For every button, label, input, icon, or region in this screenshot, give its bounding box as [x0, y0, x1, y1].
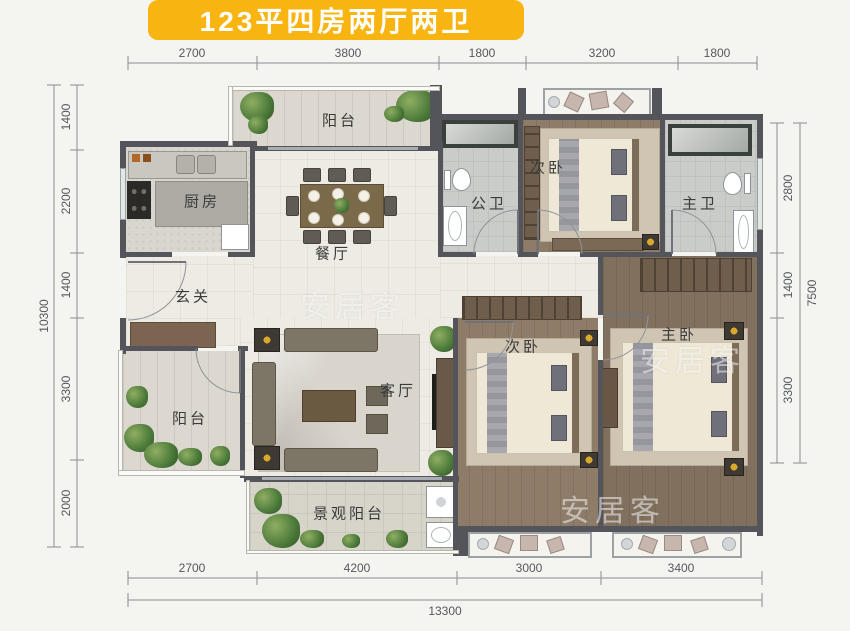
room-label-public-bath: 公卫	[471, 193, 507, 214]
door-arcs	[0, 0, 850, 631]
room-label-master-bath: 主卫	[682, 193, 718, 214]
door-arc	[538, 210, 582, 254]
room-label-dining: 餐厅	[315, 243, 351, 264]
room-label-master-bedroom: 主卧	[661, 324, 697, 345]
room-label-balcony-left: 阳台	[172, 408, 208, 429]
door-arc	[196, 349, 240, 393]
room-label-foyer: 玄关	[175, 286, 211, 307]
floor-plan-page: 2700 3800 1800 3200 1800 2700 4200 3000 …	[0, 0, 850, 631]
room-label-living: 客厅	[380, 380, 416, 401]
room-label-bedroom-top: 次卧	[530, 157, 566, 178]
page-title: 123平四房两厅两卫	[200, 0, 473, 40]
door-arc	[603, 315, 648, 360]
door-arc	[672, 210, 716, 254]
room-label-kitchen: 厨房	[184, 191, 220, 212]
room-label-landscape-balcony: 景观阳台	[313, 503, 385, 524]
room-label-balcony-top: 阳台	[322, 110, 358, 131]
room-label-bedroom-second: 次卧	[505, 336, 541, 357]
title-banner: 123平四房两厅两卫	[148, 0, 524, 40]
door-arc	[474, 210, 518, 254]
door-arc-group	[128, 210, 716, 393]
